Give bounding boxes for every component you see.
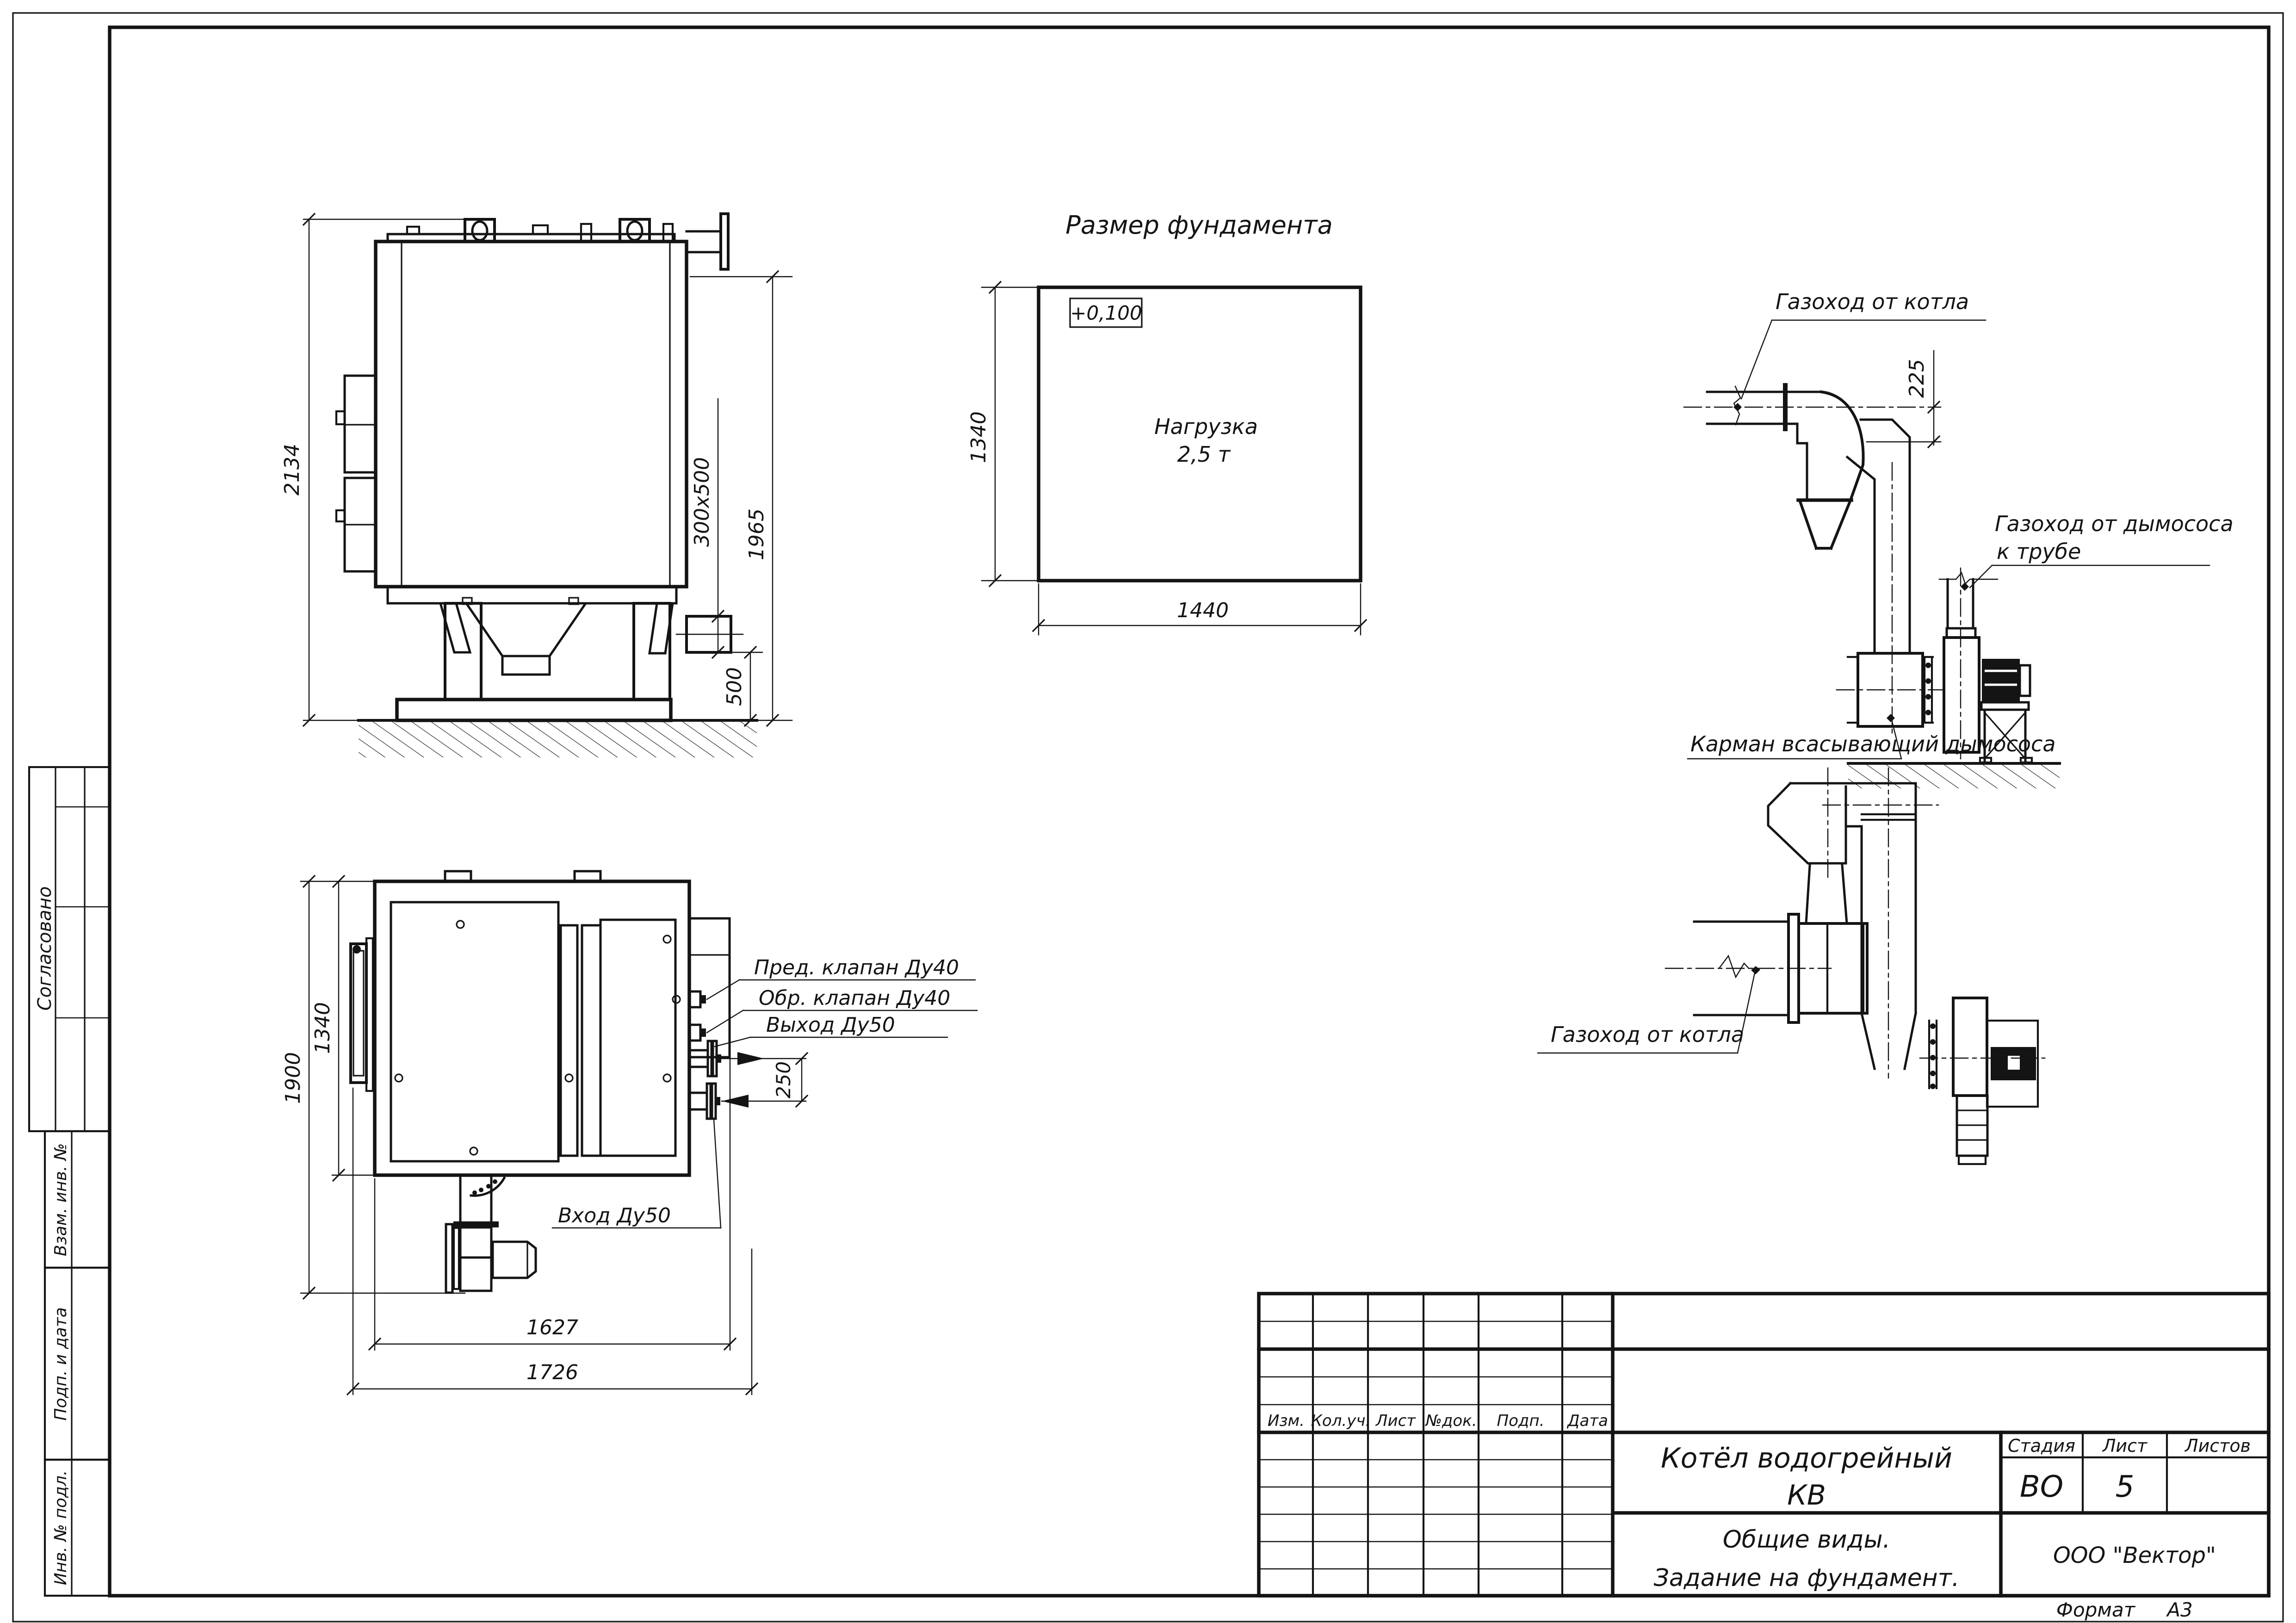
tb-stage-label: Стадия — [2008, 1436, 2075, 1456]
dim-1627: 1627 — [369, 1059, 736, 1350]
label-safety-valve-text: Пред. клапан Ду40 — [754, 956, 959, 979]
tb-col-podp: Подп. — [1497, 1412, 1545, 1430]
dim-500: 500 — [723, 647, 762, 726]
tb-col-koluch: Кол.уч. — [1311, 1412, 1371, 1430]
dim-2134-label: 2134 — [280, 444, 304, 496]
elevation-mark: +0,100 — [1070, 298, 1142, 327]
title-block: Изм. Кол.уч. Лист №док. Подп. Дата Котёл… — [1259, 1294, 2269, 1596]
dim-found-1440: 1440 — [1033, 584, 1366, 635]
stamp-agreed-label: Согласовано — [34, 886, 56, 1011]
dim-found-1440-label: 1440 — [1177, 599, 1229, 622]
dim-250-label: 250 — [772, 1061, 795, 1098]
fan-plan — [1920, 998, 2045, 1164]
dim-found-1340: 1340 — [967, 282, 1039, 586]
foundation-plan: Размер фундамента +0,100 Нагрузка 2,5 т … — [967, 211, 1366, 635]
format-note: Формат А3 — [2056, 1598, 2193, 1621]
label-inlet-text: Вход Ду50 — [558, 1204, 671, 1227]
label-outlet-text: Выход Ду50 — [766, 1013, 895, 1037]
label-duct-to-stack-text2: к трубе — [1997, 539, 2081, 564]
dim-plan-1340-label: 1340 — [311, 1002, 334, 1054]
tb-col-izm: Изм. — [1268, 1412, 1305, 1430]
label-pocket-text: Карман всасывающий дымососа — [1690, 731, 2055, 756]
dim-1726-label: 1726 — [526, 1361, 578, 1384]
format-label: Формат — [2056, 1598, 2136, 1621]
duct-elevation-view: Газоход от котла 225 — [1684, 289, 2234, 788]
foundation-load-line2: 2,5 т — [1177, 442, 1231, 467]
dim-1726: 1726 — [347, 1088, 757, 1394]
dim-225-label: 225 — [1905, 359, 1929, 398]
dim-250: 250 — [772, 1053, 807, 1107]
dim-1900-label: 1900 — [281, 1052, 305, 1104]
dim-1627-label: 1627 — [526, 1316, 578, 1339]
stamp-sign-date-label: Подп. и дата — [51, 1307, 70, 1420]
duct-plan-view: Газоход от котла — [1538, 768, 2045, 1164]
dim-500-label: 500 — [723, 667, 746, 706]
label-check-valve-text: Обр. клапан Ду40 — [759, 986, 950, 1010]
tb-col-list: Лист — [1375, 1412, 1416, 1430]
label-duct-to-stack: Газоход от дымососа к трубе — [1970, 511, 2234, 588]
format-value: А3 — [2166, 1598, 2192, 1621]
drawing-sheet: Согласовано Взам. инв. № Подп. и дата Ин… — [0, 0, 2296, 1623]
label-pocket: Карман всасывающий дымососа — [1688, 714, 2055, 759]
label-duct-from-boiler: Газоход от котла — [1741, 289, 1986, 399]
left-stamp-column: Согласовано Взам. инв. № Подп. и дата Ин… — [29, 767, 110, 1596]
burner-assembly — [446, 1175, 536, 1293]
label-duct-from-boiler-text: Газоход от котла — [1776, 289, 1969, 314]
label-duct-to-stack-text1: Газоход от дымососа — [1995, 511, 2234, 536]
label-outlet: Выход Ду50 — [715, 1013, 947, 1047]
dim-300x500-label: 300х500 — [690, 457, 714, 547]
tb-product-line2: КВ — [1787, 1479, 1826, 1511]
tb-col-ndok: №док. — [1424, 1412, 1477, 1430]
label-duct-from-boiler-plan: Газоход от котла — [1538, 966, 1760, 1053]
front-view: 2134 1965 300х500 500 — [280, 214, 792, 757]
dim-1965-label: 1965 — [745, 508, 768, 560]
tb-company: ООО "Вектор" — [2053, 1542, 2216, 1568]
boiler-plan-view: 250 1900 — [281, 871, 977, 1394]
tb-sheet-label: Лист — [2102, 1436, 2148, 1456]
lifting-lug-left — [465, 219, 495, 242]
tb-doc-line1: Общие виды. — [1723, 1526, 1890, 1554]
lifting-lug-right — [620, 219, 650, 242]
dim-found-1340-label: 1340 — [967, 411, 990, 463]
tb-col-data: Дата — [1566, 1412, 1608, 1430]
tb-stage-value: ВО — [2020, 1470, 2063, 1504]
drawing-canvas: Согласовано Взам. инв. № Подп. и дата Ин… — [0, 0, 2296, 1623]
tb-product-line1: Котёл водогрейный — [1661, 1442, 1952, 1474]
dim-300x500: 300х500 — [690, 399, 724, 658]
dim-225: 225 — [1867, 351, 1941, 447]
tb-sheets-label: Листов — [2184, 1436, 2251, 1456]
stamp-replace-inv-label: Взам. инв. № — [51, 1143, 70, 1256]
label-duct-from-boiler-plan-text: Газоход от котла — [1551, 1022, 1744, 1047]
foundation-title: Размер фундамента — [1065, 211, 1332, 240]
stamp-inv-original-label: Инв. № подл. — [51, 1470, 70, 1585]
foundation-load-line1: Нагрузка — [1154, 414, 1258, 439]
elevation-mark-value: +0,100 — [1070, 302, 1142, 324]
tb-doc-line2: Задание на фундамент. — [1654, 1564, 1960, 1592]
tb-sheet-value: 5 — [2116, 1470, 2135, 1504]
